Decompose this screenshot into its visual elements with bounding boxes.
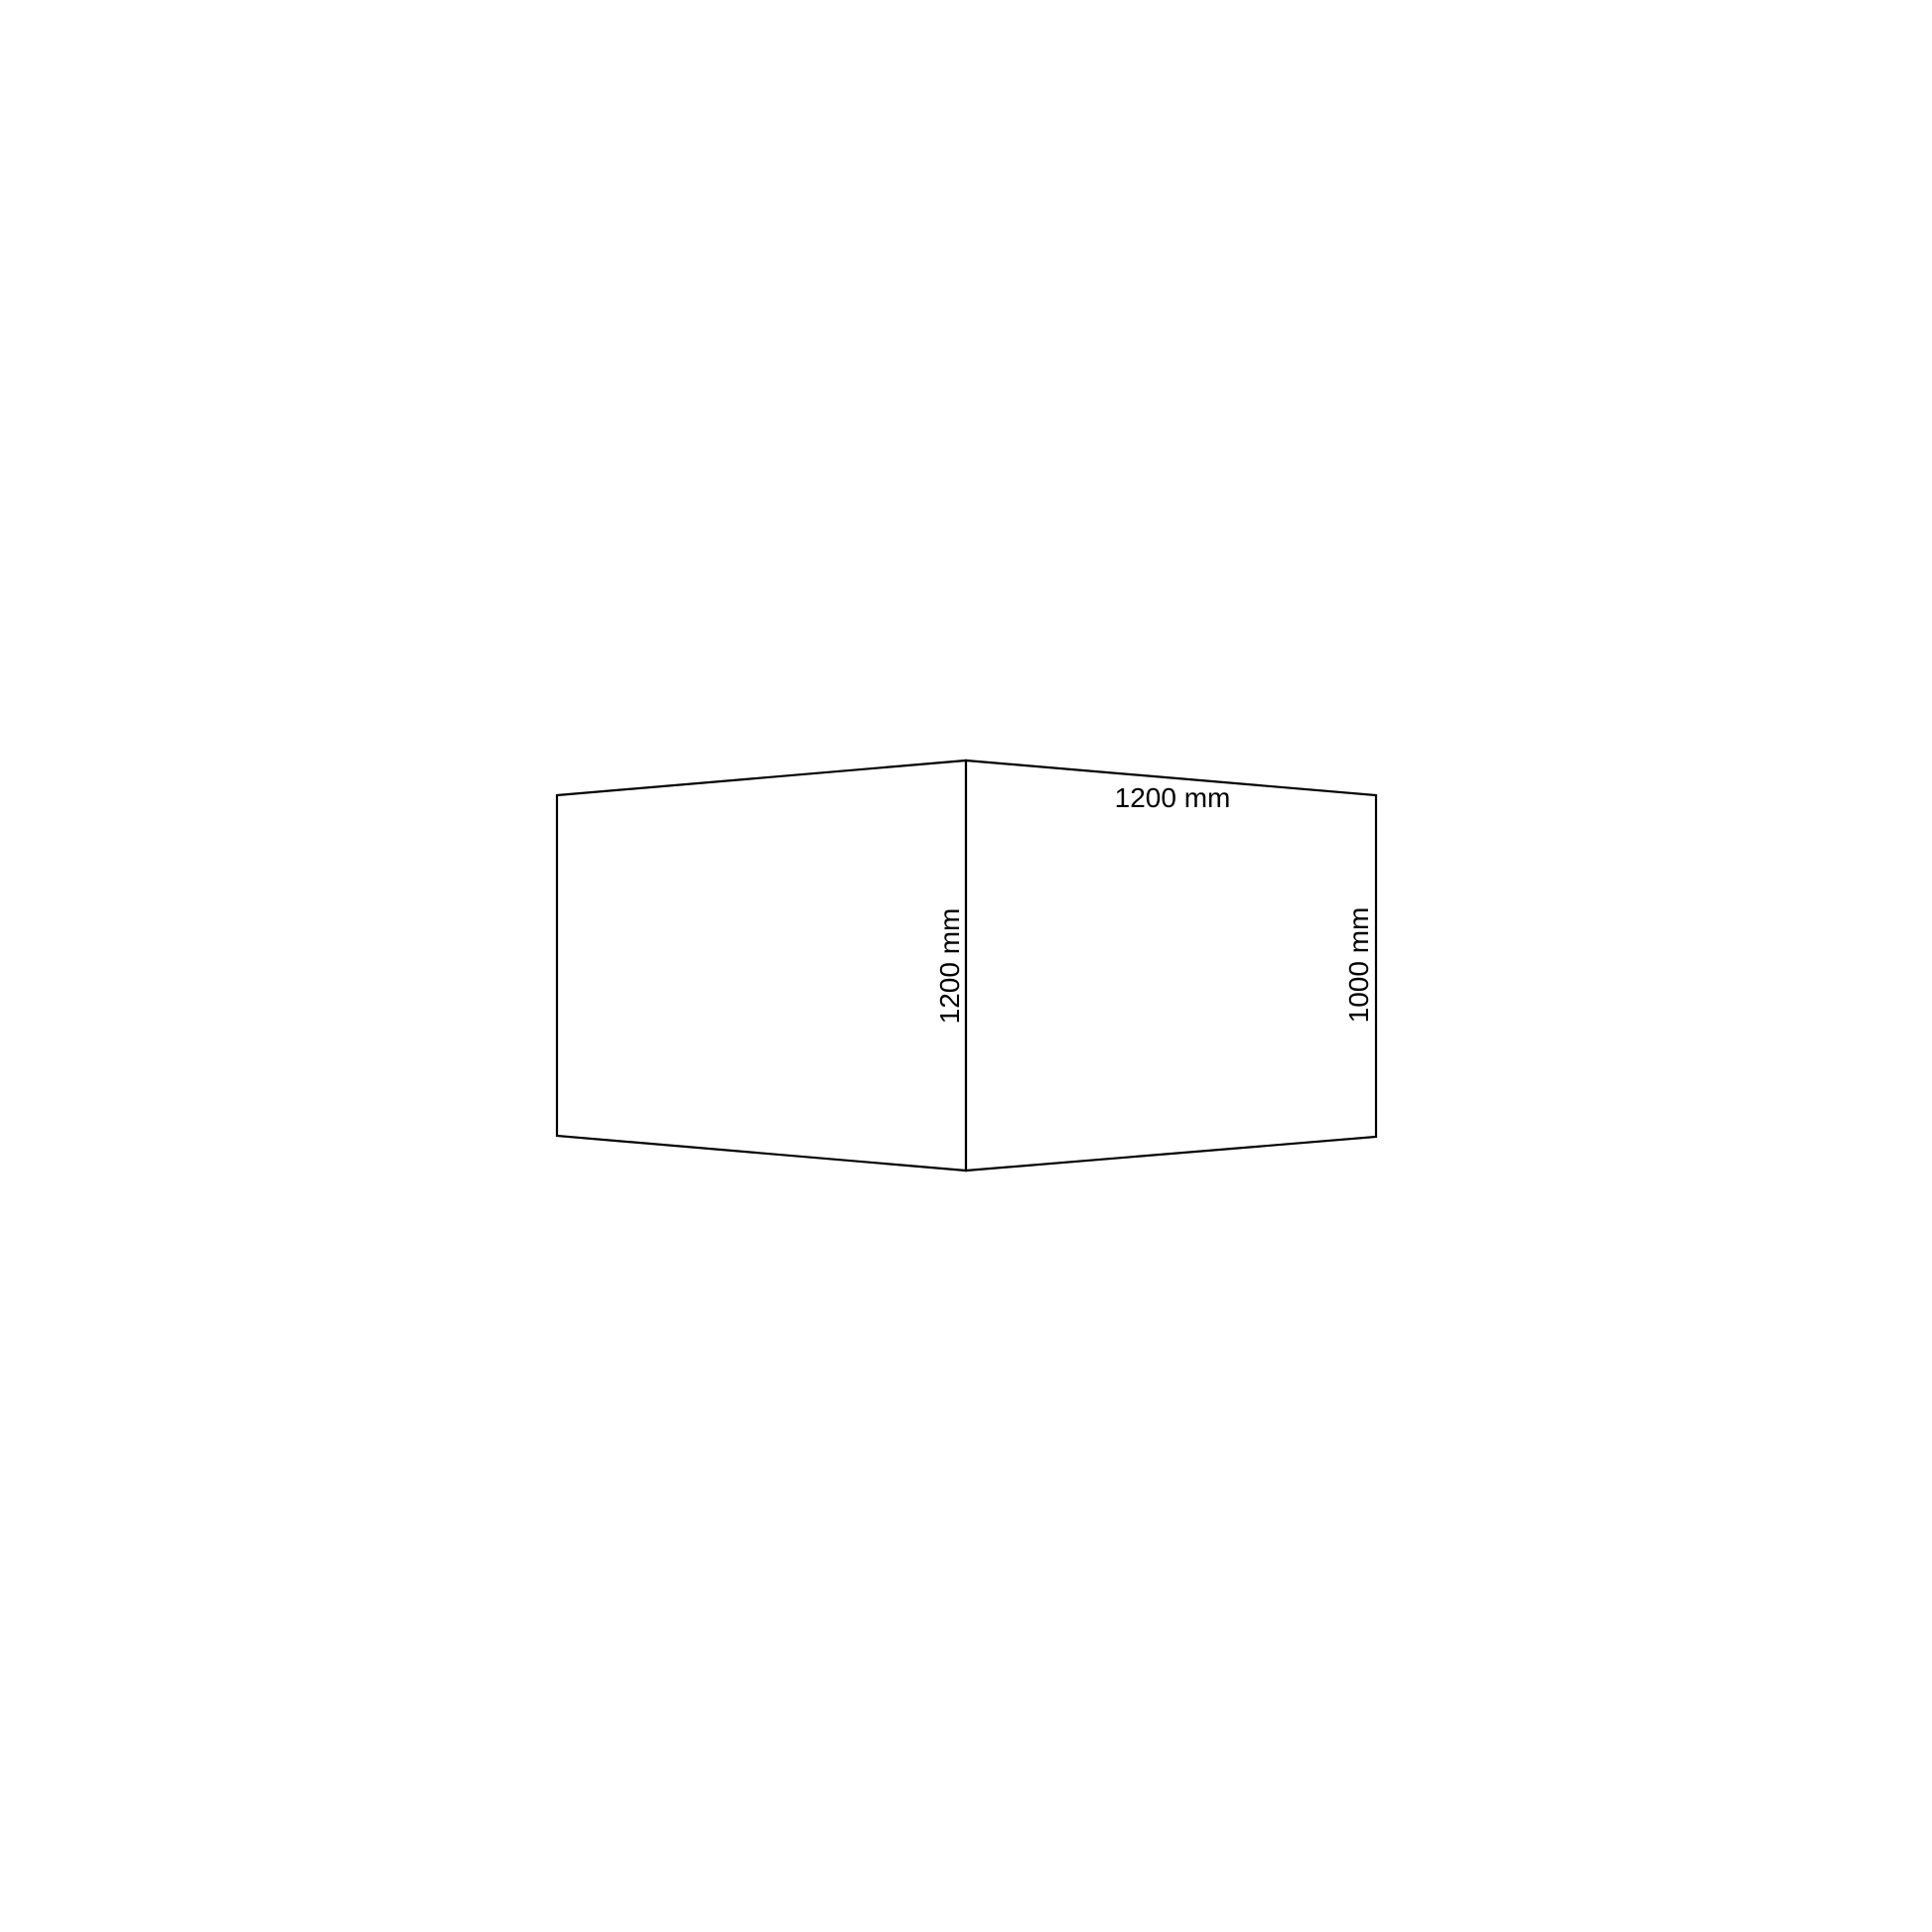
dimension-label-top-width: 1200 mm [1115, 782, 1231, 813]
right-panel-face [966, 760, 1376, 1171]
dimension-label-center-depth: 1200 mm [934, 908, 965, 1025]
diagram-canvas: 1200 mm 1200 mm 1000 mm [0, 0, 1932, 1932]
panel-dimension-diagram: 1200 mm 1200 mm 1000 mm [0, 0, 1932, 1932]
dimension-label-right-height: 1000 mm [1343, 907, 1374, 1024]
left-panel-face [557, 760, 966, 1171]
